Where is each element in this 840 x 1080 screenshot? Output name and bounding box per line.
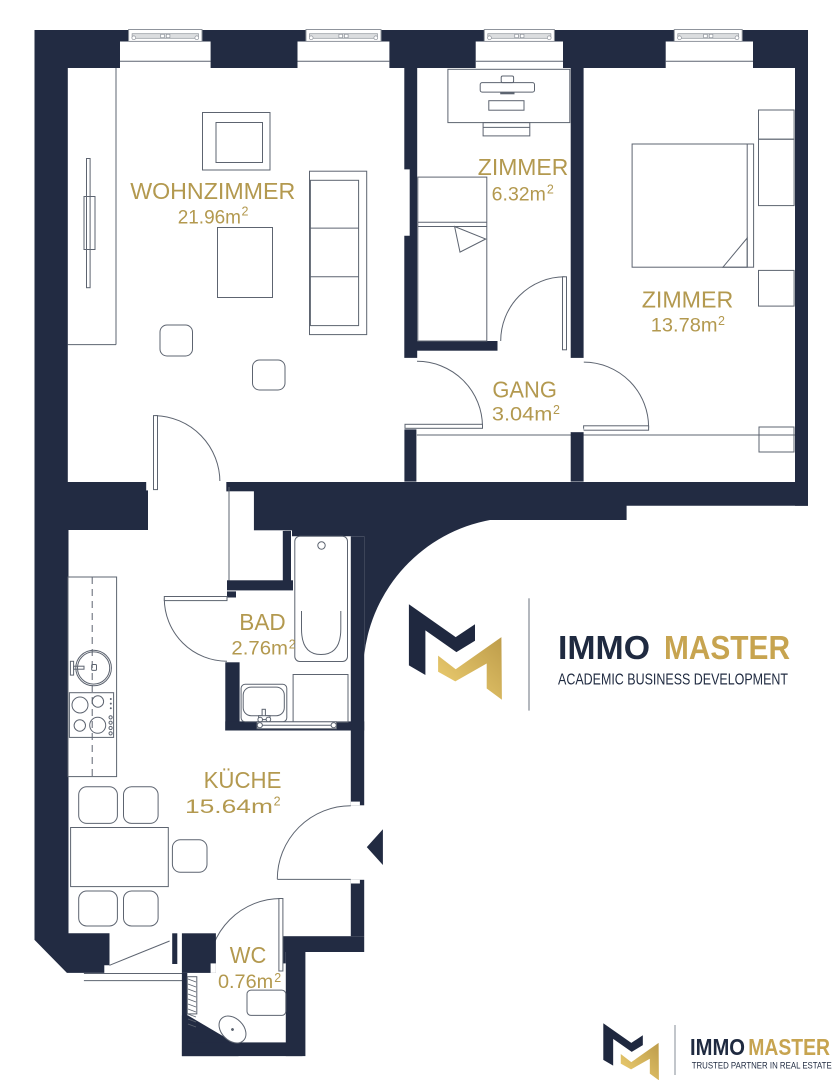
- svg-text:MASTER: MASTER: [748, 1034, 830, 1060]
- svg-text:KÜCHE: KÜCHE: [204, 767, 282, 793]
- svg-text:2: 2: [274, 971, 281, 985]
- svg-text:IMMO: IMMO: [690, 1034, 745, 1060]
- svg-text:WOHNZIMMER: WOHNZIMMER: [130, 178, 295, 204]
- svg-text:3.04m: 3.04m: [492, 404, 553, 425]
- svg-text:ZIMMER: ZIMMER: [642, 287, 734, 313]
- svg-text:6.32m: 6.32m: [492, 184, 546, 205]
- svg-text:21.96m: 21.96m: [178, 208, 241, 229]
- svg-text:2.76m: 2.76m: [231, 638, 288, 659]
- svg-text:2: 2: [547, 182, 554, 196]
- svg-text:2: 2: [242, 204, 249, 218]
- svg-text:2: 2: [274, 795, 281, 809]
- svg-text:ACADEMIC BUSINESS DEVELOPMENT: ACADEMIC BUSINESS DEVELOPMENT: [558, 671, 788, 688]
- svg-text:2: 2: [289, 638, 296, 652]
- svg-text:15.64m: 15.64m: [185, 797, 273, 818]
- svg-text:GANG: GANG: [492, 377, 557, 403]
- svg-text:2: 2: [718, 314, 725, 328]
- svg-text:ZIMMER: ZIMMER: [478, 154, 569, 180]
- svg-text:13.78m: 13.78m: [651, 316, 718, 337]
- svg-text:IMMO: IMMO: [558, 629, 650, 666]
- svg-text:0.76m: 0.76m: [218, 972, 273, 993]
- svg-text:WC: WC: [230, 942, 267, 968]
- svg-text:2: 2: [553, 403, 560, 417]
- svg-text:BAD: BAD: [239, 609, 285, 635]
- svg-text:TRUSTED PARTNER IN REAL ESTATE: TRUSTED PARTNER IN REAL ESTATE: [692, 1060, 832, 1070]
- svg-text:MASTER: MASTER: [664, 629, 790, 666]
